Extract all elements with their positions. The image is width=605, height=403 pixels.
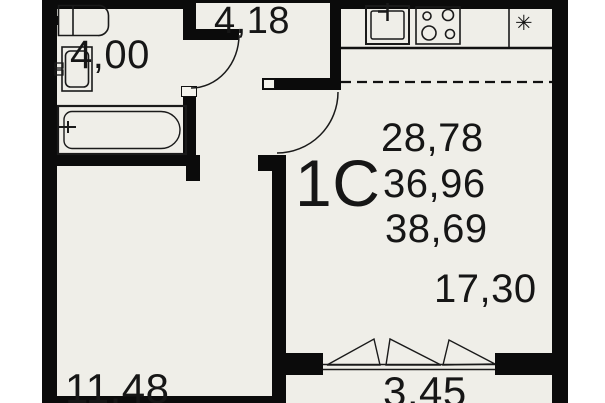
label-unit-type: 1C — [295, 150, 380, 216]
label-area-1: 28,78 — [381, 118, 484, 158]
label-area-2: 36,96 — [383, 164, 486, 204]
label-living-area: 17,30 — [434, 269, 537, 309]
kitchen-sink — [366, 3, 409, 44]
label-hallway-area: 4,18 — [214, 2, 290, 40]
label-balcony-area: 3,45 — [383, 371, 467, 403]
livingroom-door-swing — [277, 92, 338, 153]
label-area-3: 38,69 — [385, 209, 488, 249]
label-room-area: 11,48 — [65, 368, 170, 403]
washing-machine — [59, 5, 109, 35]
label-bathroom-area: 4,00 — [70, 35, 150, 75]
floor-plan: 4,18 4,00 28,78 36,96 38,69 1C 17,30 11,… — [0, 0, 605, 403]
bathtub — [57, 106, 186, 154]
window-opening-triangles — [327, 339, 495, 365]
stove — [416, 7, 460, 44]
vent-shaft-icon: ✳ — [515, 13, 533, 34]
